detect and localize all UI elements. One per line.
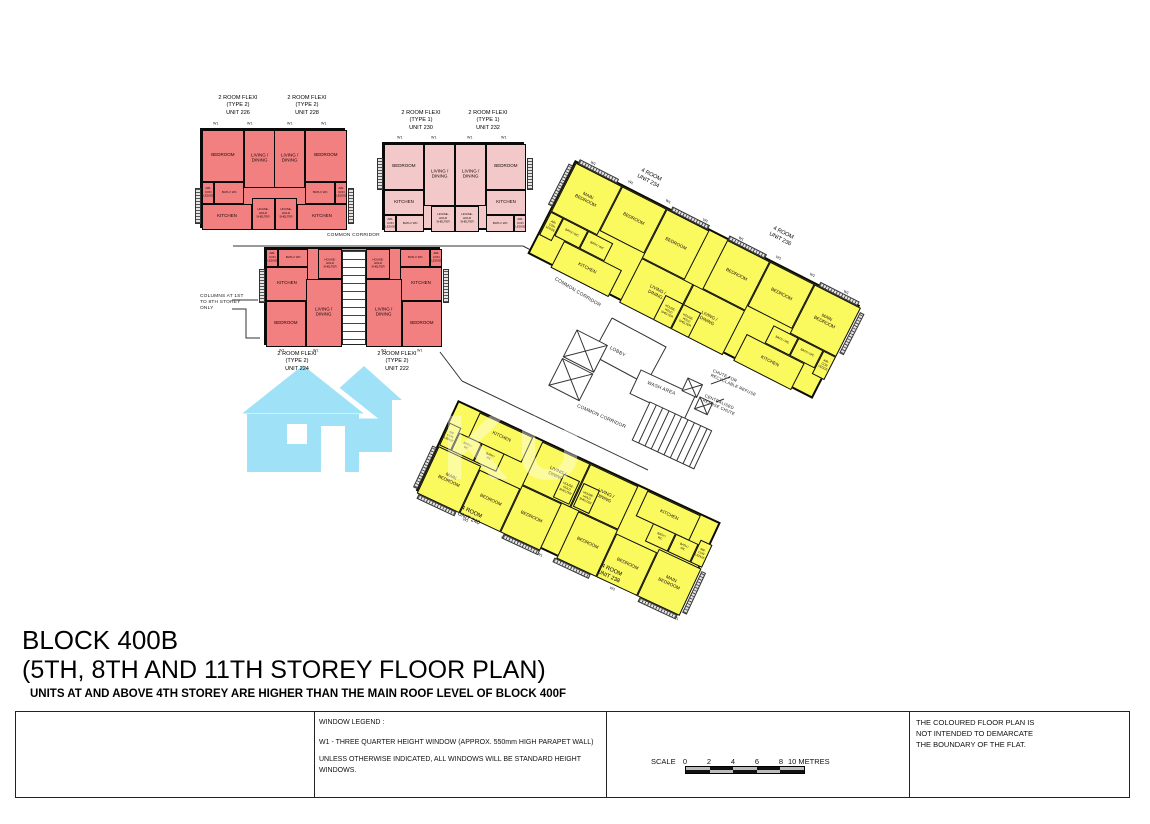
window-sill bbox=[348, 188, 354, 224]
room-label: LIVING / DINING bbox=[431, 170, 448, 180]
room-bath: BATH / WC bbox=[278, 249, 308, 267]
room-hh: HOUSE- HOLD SHELTER bbox=[431, 206, 455, 232]
window-sill bbox=[527, 158, 533, 190]
room-label: KITCHEN bbox=[576, 262, 596, 276]
room-label: AIR-CON LEDGE bbox=[817, 359, 830, 373]
room-kitchen: KITCHEN bbox=[266, 267, 308, 301]
room-label: LIVING / DINING bbox=[462, 170, 479, 180]
room-ac: AIR-CON LEDGE bbox=[384, 215, 396, 232]
room-label: BATH / WC bbox=[653, 531, 668, 543]
room-label: AIR-CON LEDGE bbox=[267, 253, 277, 263]
block-units-226-228: BEDROOMLIVING / DININGAIR-CON LEDGEBATH … bbox=[200, 128, 345, 228]
room-hh: HOUSE- HOLD SHELTER bbox=[252, 198, 275, 230]
room-label: BATH / WC bbox=[408, 256, 423, 259]
room-label: BATH / WC bbox=[481, 451, 496, 463]
room-label: HOUSE- HOLD SHELTER bbox=[558, 482, 574, 497]
common-corridor-label: COMMON CORRIDOR bbox=[327, 233, 380, 239]
room-label: MAIN BEDROOM bbox=[656, 573, 681, 592]
room-label: BEDROOM bbox=[392, 164, 415, 169]
room-label: BEDROOM bbox=[211, 153, 234, 158]
room-kitchen: KITCHEN bbox=[486, 190, 526, 215]
room-label: BEDROOM bbox=[314, 153, 337, 158]
room-bedroom: BEDROOM bbox=[402, 301, 442, 347]
room-label: BEDROOM bbox=[664, 237, 687, 252]
room-label: KITCHEN bbox=[759, 355, 779, 369]
room-label: HOUSE- HOLD SHELTER bbox=[578, 491, 594, 506]
room-label: BEDROOM bbox=[410, 321, 433, 326]
room-ac: AIR-CON LEDGE bbox=[335, 182, 347, 204]
floor-plan-canvas: KU 2 ROOM FLEXI (TYPE 2) UNIT 226 2 ROOM… bbox=[0, 0, 1150, 824]
room-label: BEDROOM bbox=[274, 321, 297, 326]
window-w1-label: W1 bbox=[397, 136, 402, 140]
unit-caption-222: 2 ROOM FLEXI (TYPE 2) UNIT 222 bbox=[362, 351, 432, 373]
room-label: AIR-CON LEDGE bbox=[203, 188, 213, 198]
room-label: HOUSE- HOLD SHELTER bbox=[678, 313, 694, 328]
room-label: BEDROOM bbox=[519, 511, 542, 526]
window-w1-label: W1 bbox=[501, 136, 506, 140]
room-bedroom: BEDROOM bbox=[305, 130, 347, 182]
room-label: MAIN BEDROOM bbox=[574, 189, 599, 209]
room-bath: BATH / WC bbox=[486, 215, 514, 232]
room-bath: BATH / WC bbox=[214, 182, 244, 204]
room-living: LIVING / DINING bbox=[244, 130, 275, 188]
room-living: LIVING / DINING bbox=[424, 144, 455, 206]
room-ac: AIR-CON LEDGE bbox=[430, 249, 442, 267]
room-hh: HOUSE- HOLD SHELTER bbox=[275, 198, 298, 230]
stairs-icon bbox=[632, 402, 711, 469]
room-label: BEDROOM bbox=[478, 494, 501, 509]
room-label: LIVING / DINING bbox=[251, 154, 268, 164]
room-kitchen: KITCHEN bbox=[297, 204, 347, 230]
room-bath: BATH / WC bbox=[396, 215, 424, 232]
window-sill bbox=[195, 188, 201, 224]
room-label: KITCHEN bbox=[658, 509, 678, 522]
window-w1-label: W1 bbox=[213, 122, 218, 126]
window-w1-label: W1 bbox=[431, 136, 436, 140]
room-label: BEDROOM bbox=[725, 268, 748, 283]
room-bath: BATH / WC bbox=[305, 182, 335, 204]
room-living: LIVING / DINING bbox=[306, 279, 342, 347]
room-ac: AIR-CON LEDGE bbox=[514, 215, 526, 232]
room-label: KITCHEN bbox=[394, 200, 414, 205]
unit-caption-224: 2 ROOM FLEXI (TYPE 2) UNIT 224 bbox=[262, 351, 332, 373]
unit-caption-232: 2 ROOM FLEXI (TYPE 1) UNIT 232 bbox=[453, 110, 523, 132]
window-sill bbox=[377, 158, 383, 190]
room-label: LIVING / DINING bbox=[315, 308, 332, 318]
room-label: BATH / WC bbox=[313, 191, 328, 194]
block-units-224-222: AIR-CON LEDGEBATH / WCHOUSE- HOLD SHELTE… bbox=[264, 247, 440, 345]
room-label: BEDROOM bbox=[770, 288, 793, 303]
room-label: LIVING / DINING bbox=[375, 308, 392, 318]
room-label: AIR-CON LEDGE bbox=[336, 188, 346, 198]
room-label: BATH / WC bbox=[589, 241, 604, 251]
room-bedroom: BEDROOM bbox=[202, 130, 244, 182]
window-sill bbox=[443, 269, 449, 303]
room-label: KITCHEN bbox=[277, 281, 297, 286]
room-label: BATH / WC bbox=[799, 348, 814, 358]
room-label: LIVING / DINING bbox=[281, 154, 298, 164]
room-kitchen: KITCHEN bbox=[384, 190, 424, 215]
window-w1-label: W1 bbox=[287, 122, 292, 126]
room-living: LIVING / DINING bbox=[274, 130, 305, 188]
room-label: BATH / WC bbox=[675, 542, 690, 554]
window-sill bbox=[259, 269, 265, 303]
room-bedroom: BEDROOM bbox=[486, 144, 526, 190]
room-ac: AIR-CON LEDGE bbox=[266, 249, 278, 267]
room-bedroom: BEDROOM bbox=[384, 144, 424, 190]
window-w1-label: W1 bbox=[321, 122, 326, 126]
room-label: BATH / WC bbox=[564, 228, 579, 238]
room-label: HOUSE- HOLD SHELTER bbox=[460, 214, 473, 224]
room-hh: HOUSE- HOLD SHELTER bbox=[318, 249, 342, 279]
room-ac: AIR-CON LEDGE bbox=[202, 182, 214, 204]
room-label: BEDROOM bbox=[622, 212, 645, 227]
room-kitchen: KITCHEN bbox=[202, 204, 252, 230]
room-label: KITCHEN bbox=[217, 214, 237, 219]
window-w1-label: W1 bbox=[467, 136, 472, 140]
room-label: KITCHEN bbox=[491, 431, 511, 444]
room-label: KITCHEN bbox=[496, 200, 516, 205]
room-label: AIR-CON LEDGE bbox=[695, 547, 708, 561]
stairs-icon bbox=[342, 250, 366, 345]
room-label: HOUSE- HOLD SHELTER bbox=[371, 259, 384, 269]
room-label: HOUSE- HOLD SHELTER bbox=[436, 214, 449, 224]
room-label: MAIN BEDROOM bbox=[436, 470, 461, 489]
room-label: KITCHEN bbox=[312, 214, 332, 219]
lift-shaft-icon bbox=[549, 330, 607, 401]
room-hh: HOUSE- HOLD SHELTER bbox=[455, 206, 479, 232]
room-label: HOUSE- HOLD SHELTER bbox=[257, 209, 270, 219]
columns-note: COLUMNS AT 1ST TO 8TH STOREY ONLY bbox=[200, 294, 244, 312]
room-label: BEDROOM bbox=[576, 537, 599, 552]
room-label: KITCHEN bbox=[411, 281, 431, 286]
unit-caption-230: 2 ROOM FLEXI (TYPE 1) UNIT 230 bbox=[386, 110, 456, 132]
room-label: LIVING / DINING bbox=[698, 311, 718, 328]
window-w1-label: W1 bbox=[247, 122, 252, 126]
room-label: HOUSE- HOLD SHELTER bbox=[323, 259, 336, 269]
room-label: BATH / WC bbox=[493, 222, 508, 225]
room-label: MAIN BEDROOM bbox=[813, 311, 838, 331]
block-units-230-232: BEDROOMLIVING / DININGKITCHENAIR-CON LED… bbox=[382, 142, 524, 230]
room-label: BATH / WC bbox=[286, 256, 301, 259]
room-bath: BATH / WC bbox=[400, 249, 430, 267]
room-hh: HOUSE- HOLD SHELTER bbox=[366, 249, 390, 279]
room-living: LIVING / DINING bbox=[455, 144, 486, 206]
room-label: BATH / WC bbox=[222, 191, 237, 194]
room-label: AIR-CON LEDGE bbox=[515, 218, 525, 228]
room-living: LIVING / DINING bbox=[366, 279, 402, 347]
room-kitchen: KITCHEN bbox=[400, 267, 442, 301]
room-label: HOUSE- HOLD SHELTER bbox=[279, 209, 292, 219]
room-bedroom: BEDROOM bbox=[266, 301, 306, 347]
room-label: BATH / WC bbox=[774, 336, 789, 346]
room-label: BATH / WC bbox=[459, 441, 474, 453]
unit-caption-226: 2 ROOM FLEXI (TYPE 2) UNIT 226 bbox=[203, 95, 273, 117]
core-linework-svg bbox=[0, 0, 1150, 824]
room-label: BATH / WC bbox=[403, 222, 418, 225]
room-label: BEDROOM bbox=[494, 164, 517, 169]
room-label: AIR-CON LEDGE bbox=[385, 218, 395, 228]
room-label: AIR-CON LEDGE bbox=[431, 253, 441, 263]
room-label: HOUSE- HOLD SHELTER bbox=[660, 304, 676, 319]
unit-caption-228: 2 ROOM FLEXI (TYPE 2) UNIT 228 bbox=[272, 95, 342, 117]
